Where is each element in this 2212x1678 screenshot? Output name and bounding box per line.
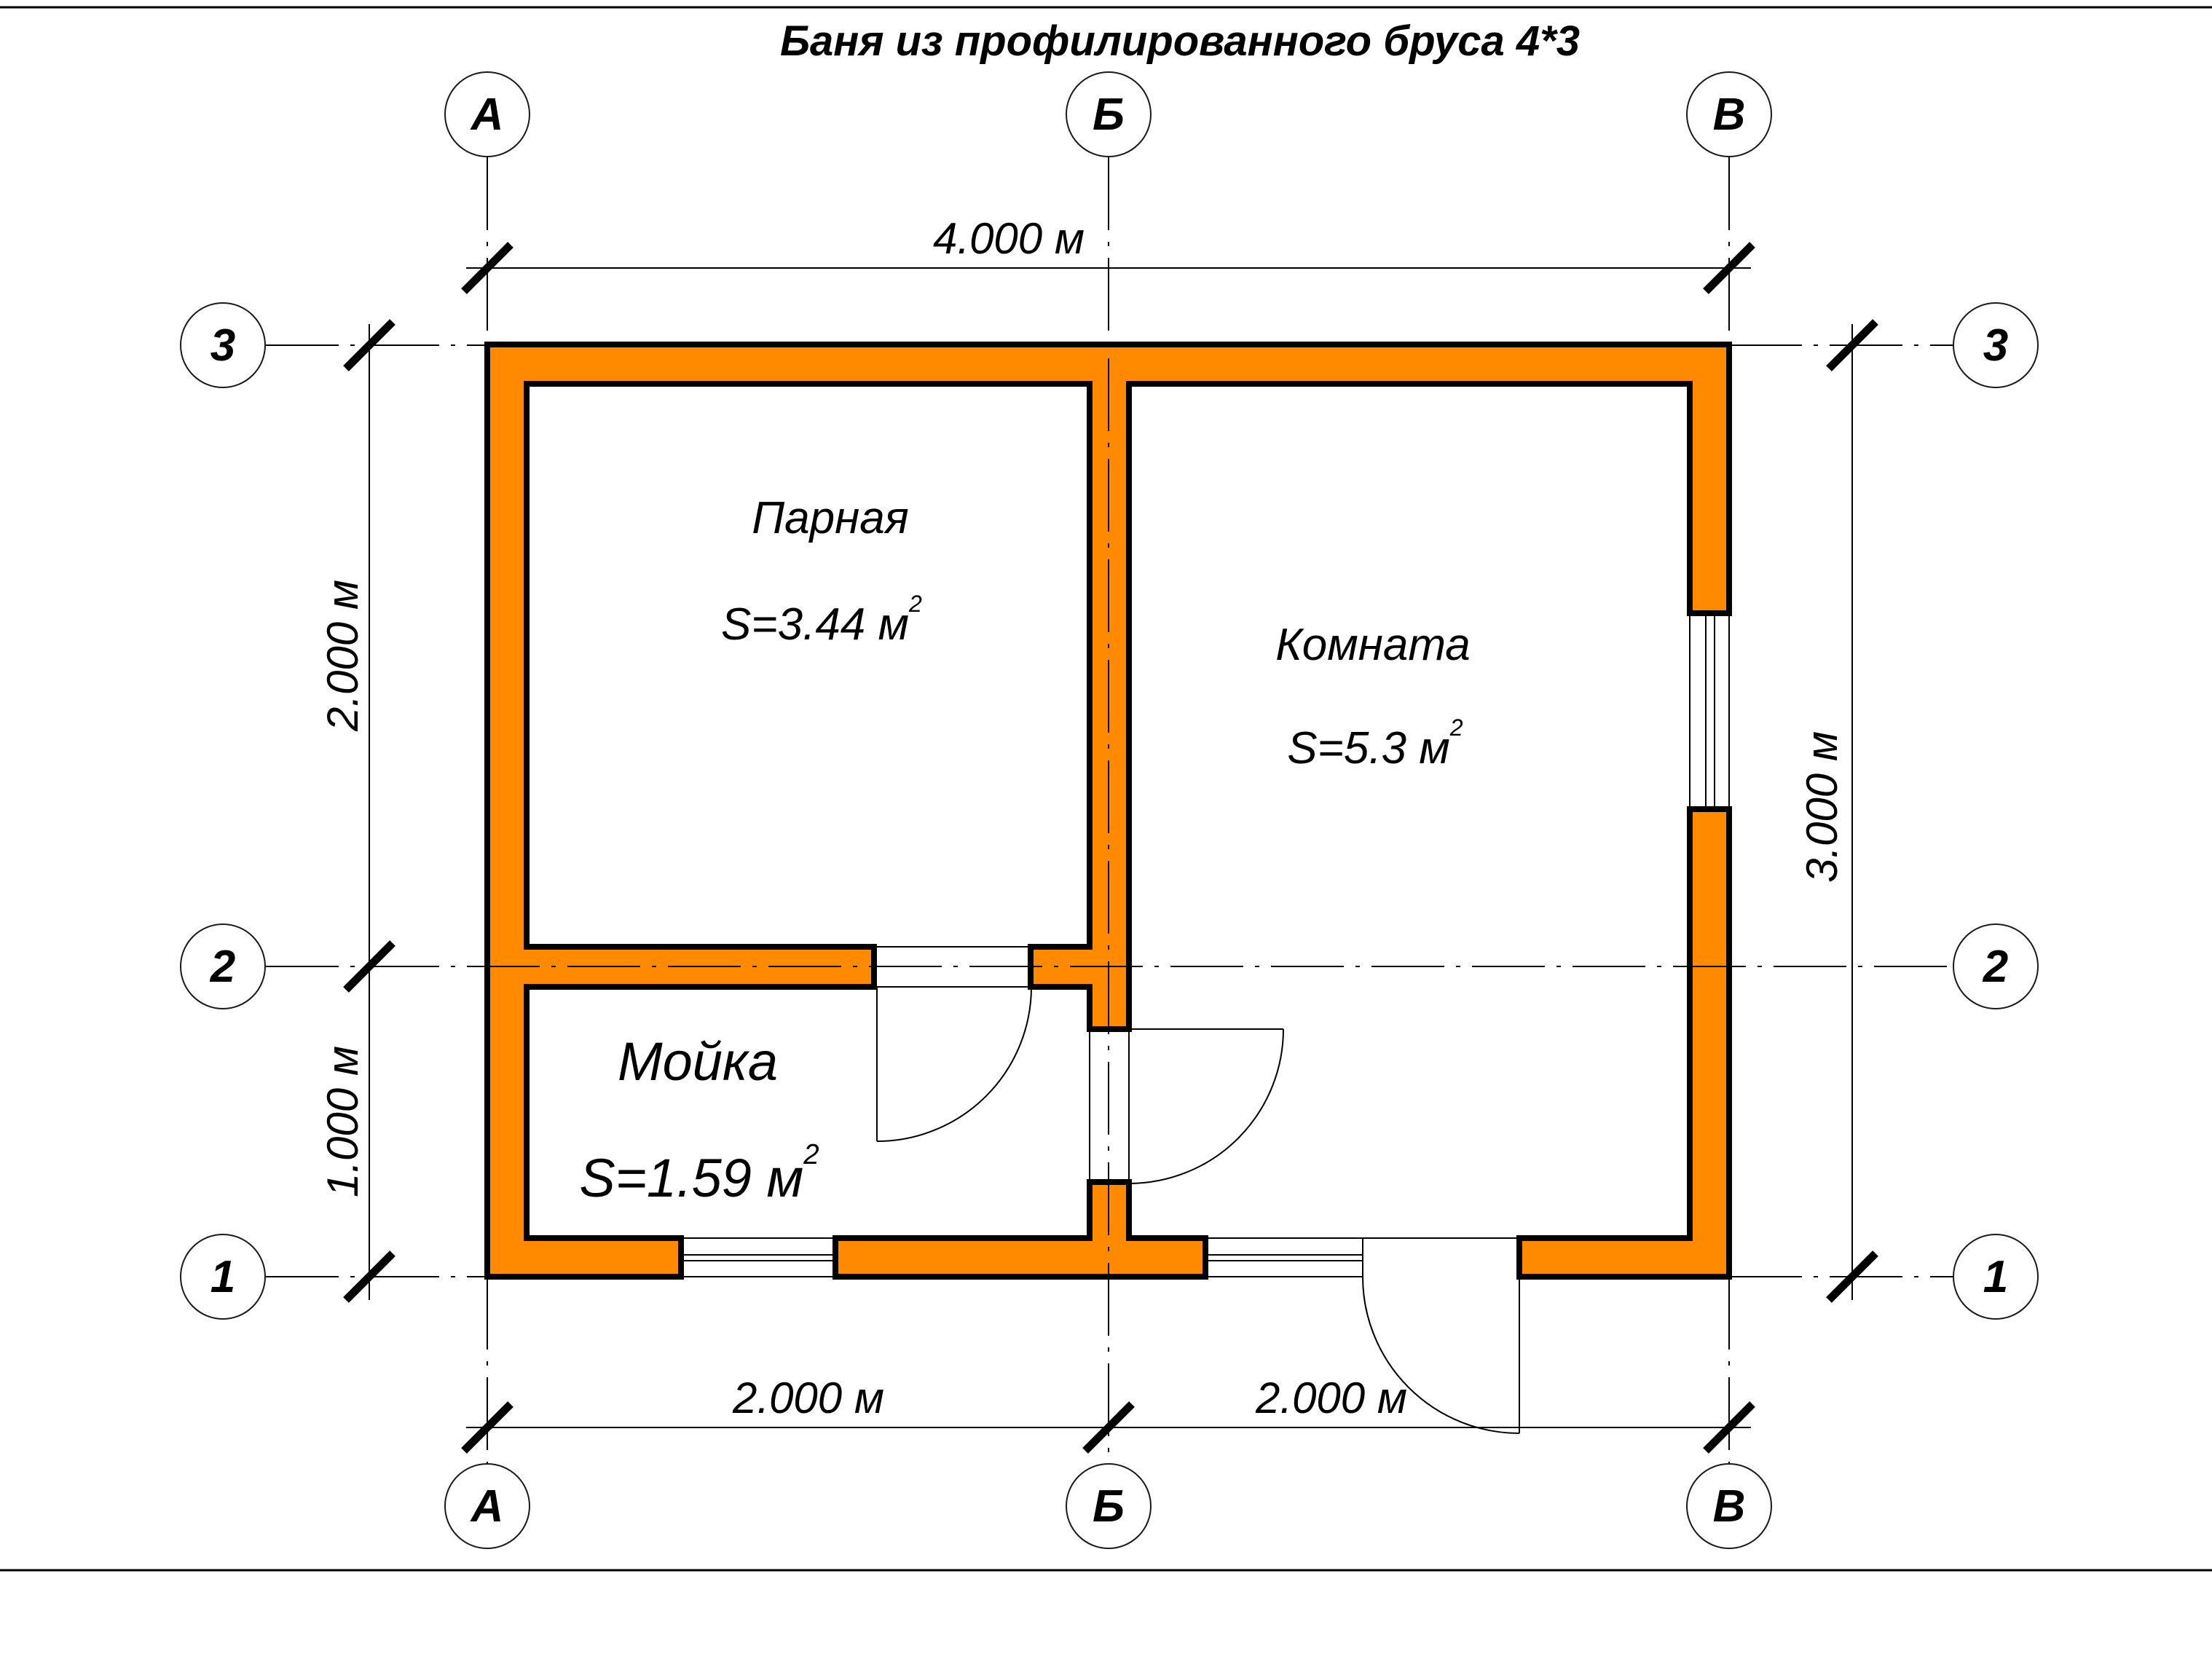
door-parnaya	[874, 947, 1031, 1141]
axis-circle-bottom-a: А	[444, 1463, 530, 1549]
drawing-sheet: Баня из профилированного бруса 4*3 4.000…	[0, 0, 2212, 1678]
axis-circle-right-3: 3	[1953, 302, 2039, 388]
axis-circle-bottom-v: В	[1686, 1463, 1772, 1549]
axis-circle-right-2: 2	[1953, 923, 2039, 1009]
axis-letter: А	[471, 1481, 504, 1532]
dim-label-bottom-right: 2.000 м	[1256, 1376, 1407, 1420]
axis-circle-top-v: В	[1686, 71, 1772, 157]
axis-circle-bottom-b: Б	[1066, 1463, 1152, 1549]
room-area-moika-value: S=1.59 м	[579, 1148, 803, 1208]
room-name-moika: Мойка	[618, 1035, 778, 1089]
axis-number: 3	[210, 320, 235, 371]
window-moika-bottom	[681, 1238, 835, 1277]
axis-circle-left-2: 2	[180, 923, 266, 1009]
axis-number: 3	[1983, 320, 2008, 371]
axis-circle-top-b: Б	[1066, 71, 1152, 157]
window-komnata-right	[1690, 613, 1729, 809]
axis-circle-top-a: А	[444, 71, 530, 157]
door-moika-komnata-swing-arc	[1129, 1029, 1283, 1183]
dim-label-right: 3.000 м	[1800, 731, 1844, 883]
room-name-komnata: Комната	[1275, 623, 1471, 668]
axis-letter: В	[1713, 1481, 1746, 1532]
axis-number: 1	[210, 1251, 235, 1303]
room-name-parnaya: Парная	[752, 496, 909, 541]
room-area-parnaya-sup: 2	[909, 591, 922, 617]
axis-letter: В	[1713, 89, 1746, 141]
room-area-komnata-sup: 2	[1450, 714, 1463, 741]
wall-left	[487, 384, 527, 1238]
axis-number: 1	[1983, 1251, 2008, 1303]
room-area-parnaya: S=3.44 м2	[721, 602, 922, 647]
wall-right-upper	[1690, 384, 1729, 613]
dim-label-left-lower: 1.000 м	[321, 1046, 365, 1197]
drawing-title: Баня из профилированного бруса 4*3	[780, 20, 1580, 63]
room-area-moika: S=1.59 м2	[579, 1151, 819, 1205]
wall-bottom-middle	[835, 1238, 1205, 1277]
axis-letter: А	[471, 89, 504, 141]
axis-number: 2	[210, 941, 235, 993]
dim-label-bottom-left: 2.000 м	[733, 1376, 884, 1420]
room-area-komnata: S=5.3 м2	[1287, 726, 1463, 771]
room-area-parnaya-value: S=3.44 м	[721, 599, 909, 650]
axis-number: 2	[1983, 941, 2008, 993]
room-area-moika-sup: 2	[803, 1139, 819, 1170]
axis-circle-left-1: 1	[180, 1234, 266, 1320]
axis-circle-right-1: 1	[1953, 1234, 2039, 1320]
door-parnaya-swing-arc	[877, 987, 1031, 1141]
dim-label-left-upper: 2.000 м	[321, 580, 365, 731]
floor-plan-drawing	[0, 0, 2212, 1678]
wall-right-lower	[1690, 809, 1729, 1238]
axis-letter: Б	[1093, 89, 1125, 141]
doors	[874, 947, 1519, 1433]
axis-circle-left-3: 3	[180, 302, 266, 388]
room-area-komnata-value: S=5.3 м	[1287, 723, 1449, 773]
door-moika-komnata	[1090, 1029, 1283, 1183]
axis-letter: Б	[1093, 1481, 1125, 1532]
window-entry-sidelight	[1205, 1238, 1519, 1277]
dim-label-top: 4.000 м	[933, 217, 1085, 261]
